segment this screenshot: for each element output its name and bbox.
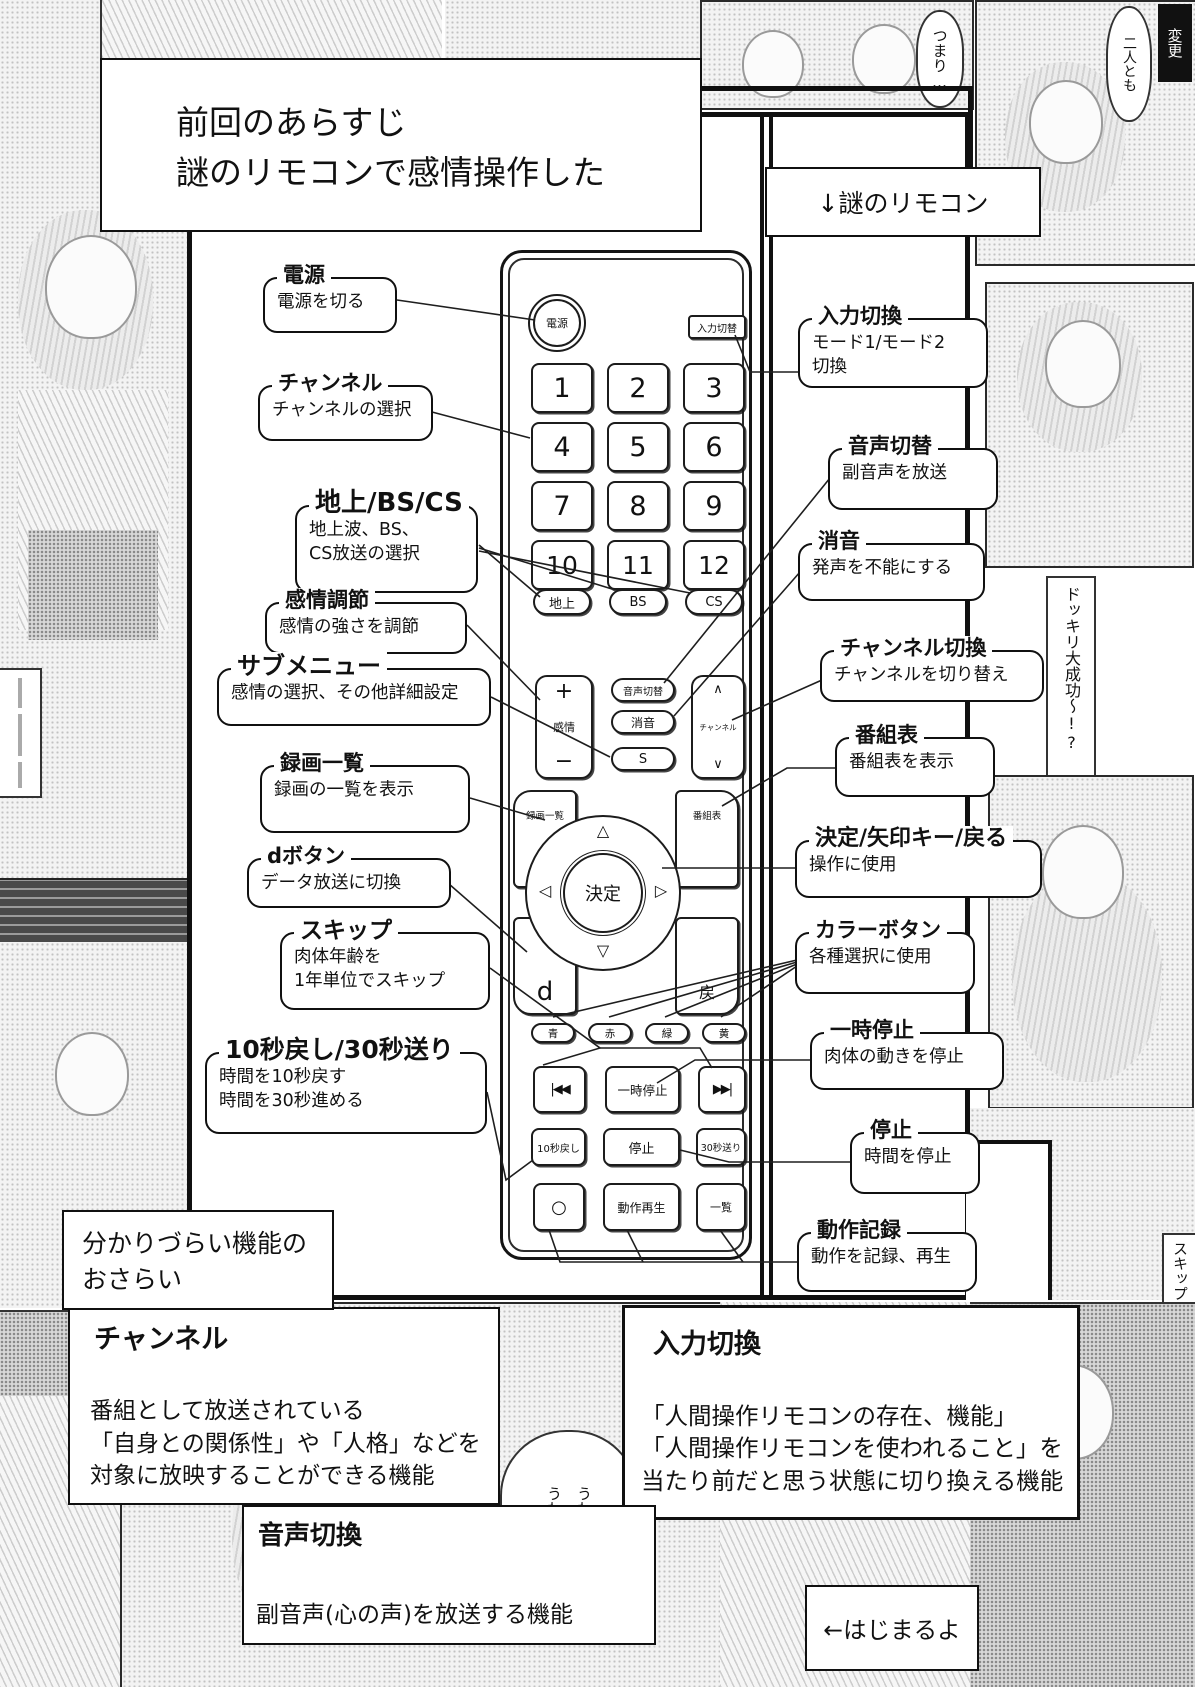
number-button-2[interactable]: 2: [607, 363, 669, 413]
train-tracks-art: [0, 878, 187, 944]
manga-page: つまり… 二人とも 変更 ドッキリ大成功〜!? スキップ: [0, 0, 1195, 1687]
callout-title: 音声切替: [842, 434, 938, 459]
review-intro-box: 分かりづらい機能の おさらい: [62, 1210, 334, 1310]
back-button[interactable]: 戻: [675, 917, 739, 1015]
review-intro-text: 分かりづらい機能の おさらい: [82, 1226, 307, 1299]
callout-channel: チャンネル チャンネルの選択: [258, 385, 433, 441]
number-button-3[interactable]: 3: [683, 363, 745, 413]
recap-text: 前回のあらすじ 謎のリモコンで感情操作した: [176, 98, 605, 197]
callout-title: 停止: [864, 1118, 918, 1143]
review-section-body: 副音声(心の声)を放送する機能: [256, 1595, 573, 1629]
bs-button[interactable]: BS: [609, 589, 667, 615]
callout-input-switch: 入力切換 モード1/モード2 切換: [798, 318, 988, 388]
callout-d-button: dボタン データ放送に切換: [247, 858, 451, 908]
vertical-caption-illegible: [0, 668, 42, 798]
terrestrial-button[interactable]: 地上: [533, 589, 591, 615]
record-circle-button[interactable]: ○: [533, 1183, 585, 1231]
number-button-7[interactable]: 7: [531, 481, 593, 531]
callout-desc: モード1/モード2 切換: [800, 320, 986, 383]
callout-program-guide: 番組表 番組表を表示: [835, 737, 995, 797]
arrow-up-icon[interactable]: △: [591, 821, 615, 840]
callout-10s-30s: 10秒戻し/30秒送り 時間を10秒戻す 時間を30秒進める: [205, 1052, 487, 1134]
remote-control: 電源 入力切替 1 2 3 4 5 6 7 8 9 10 11 12 地上 BS…: [500, 250, 752, 1260]
callout-bands: 地上/BS/CS 地上波、BS、 CS放送の選択: [295, 505, 478, 593]
character-head: [45, 235, 137, 339]
manga-art-panel: [0, 0, 102, 110]
callout-title: サブメニュー: [231, 652, 387, 681]
number-button-4[interactable]: 4: [531, 422, 593, 472]
number-button-11[interactable]: 11: [607, 540, 669, 590]
mute-button[interactable]: 消音: [611, 710, 675, 734]
emotion-label: 感情: [553, 719, 575, 735]
cs-button[interactable]: CS: [685, 589, 743, 615]
arrow-right-icon[interactable]: ▷: [649, 881, 673, 900]
callout-channel-switch: チャンネル切換 チャンネルを切り替え: [820, 650, 1044, 702]
caption-tag: 変更: [1158, 4, 1192, 82]
caption-text: スキップ: [1170, 1241, 1191, 1301]
arrow-down-icon[interactable]: ▽: [591, 941, 615, 960]
review-section-body: 「人間操作リモコンの存在、機能」 「人間操作リモコンを使われること」を 当たり前…: [641, 1400, 1063, 1497]
emotion-minus[interactable]: −: [555, 751, 573, 773]
callout-title: 10秒戻し/30秒送り: [219, 1035, 460, 1065]
skip-back-button[interactable]: |◀◀: [533, 1066, 586, 1113]
vertical-caption: ドッキリ大成功〜!?: [1046, 576, 1096, 796]
callout-title: 電源: [277, 263, 331, 288]
emotion-plus[interactable]: +: [555, 681, 573, 703]
callout-pause: 一時停止 肉体の動きを停止: [810, 1032, 1004, 1090]
program-guide-button[interactable]: 番組表: [675, 790, 739, 888]
number-button-9[interactable]: 9: [683, 481, 745, 531]
channel-up[interactable]: ∧: [713, 683, 723, 696]
callout-mute: 消音 発声を不能にする: [798, 543, 985, 601]
callout-title: 感情調節: [279, 588, 375, 613]
callout-stop: 停止 時間を停止: [850, 1132, 980, 1194]
callout-power: 電源 電源を切る: [263, 277, 397, 333]
character-head: [1029, 80, 1103, 164]
callout-ok-arrows-back: 決定/矢印キー/戻る 操作に使用: [795, 840, 1042, 898]
callout-title: 消音: [812, 529, 866, 554]
remote-pointer-box: ↓謎のリモコン: [765, 167, 1041, 237]
list-button[interactable]: 一覧: [696, 1183, 746, 1231]
color-button-green[interactable]: 緑: [645, 1023, 689, 1043]
review-audio-box: 音声切換 副音声(心の声)を放送する機能: [242, 1505, 656, 1645]
callout-title: 決定/矢印キー/戻る: [809, 826, 1013, 852]
callout-submenu: サブメニュー 感情の選択、その他詳細設定: [217, 668, 491, 726]
callout-emotion-adjust: 感情調節 感情の強さを調節: [265, 602, 467, 654]
speech-text: つまり…: [930, 28, 951, 91]
stop-button[interactable]: 停止: [603, 1128, 680, 1166]
character-head: [1042, 825, 1124, 919]
character-skirt: [28, 530, 158, 640]
input-select-button[interactable]: 入力切替: [688, 315, 746, 339]
audio-switch-button[interactable]: 音声切替: [611, 678, 675, 702]
forward-30s-button[interactable]: 30秒送り: [696, 1128, 746, 1166]
speech-text: 二人とも: [1119, 36, 1139, 92]
color-button-red[interactable]: 赤: [588, 1023, 632, 1043]
callout-title: 番組表: [849, 723, 924, 748]
color-button-blue[interactable]: 青: [531, 1023, 575, 1043]
caption-text: ドッキリ大成功〜!?: [1059, 586, 1083, 752]
callout-title: 動作記録: [811, 1218, 907, 1243]
callout-title: 入力切換: [812, 304, 908, 329]
speech-bubble: 二人とも: [1106, 6, 1152, 122]
channel-down[interactable]: ∨: [713, 758, 723, 771]
callout-audio-switch: 音声切替 副音声を放送: [828, 448, 998, 510]
review-section-body: 番組として放送されている 「自身との関係性」や「人格」などを 対象に放映すること…: [90, 1395, 481, 1493]
number-button-5[interactable]: 5: [607, 422, 669, 472]
callout-recorded-list: 録画一覧 録画の一覧を表示: [260, 765, 470, 833]
review-section-title: 音声切換: [258, 1515, 362, 1552]
callout-title: 地上/BS/CS: [309, 488, 469, 519]
submenu-button[interactable]: S: [611, 747, 675, 771]
arrow-left-icon[interactable]: ◁: [533, 881, 557, 900]
color-button-yellow[interactable]: 黄: [702, 1023, 746, 1043]
back-10s-button[interactable]: 10秒戻し: [531, 1128, 586, 1166]
callout-title: チャンネル: [272, 371, 388, 396]
manga-art-panel: [988, 775, 1194, 1109]
start-box: ←はじまるよ: [805, 1585, 979, 1671]
recap-box: 前回のあらすじ 謎のリモコンで感情操作した: [100, 58, 702, 232]
callout-title: スキップ: [294, 918, 398, 946]
manga-art-panel: [445, 0, 700, 58]
skip-forward-button[interactable]: ▶▶|: [698, 1066, 746, 1113]
power-button[interactable]: 電源: [533, 299, 581, 347]
number-button-1[interactable]: 1: [531, 363, 593, 413]
callout-title: dボタン: [261, 844, 351, 869]
emotion-rocker[interactable]: + 感情 −: [535, 675, 593, 779]
callout-title: 録画一覧: [274, 751, 370, 776]
callout-color-buttons: カラーボタン 各種選択に使用: [795, 932, 975, 994]
review-input-box: 入力切換 「人間操作リモコンの存在、機能」 「人間操作リモコンを使われること」を…: [622, 1305, 1080, 1520]
panel-gutter-line: [760, 114, 764, 1298]
manga-art-panel: [102, 0, 442, 58]
manga-art-panel: [985, 282, 1194, 568]
callout-title: チャンネル切換: [834, 636, 992, 661]
review-section-title: チャンネル: [94, 1317, 228, 1356]
number-button-10[interactable]: 10: [531, 540, 593, 590]
action-play-button[interactable]: 動作再生: [603, 1183, 680, 1231]
callout-title: カラーボタン: [809, 918, 947, 943]
number-button-8[interactable]: 8: [607, 481, 669, 531]
character-head: [55, 1032, 129, 1116]
pause-button[interactable]: 一時停止: [605, 1066, 680, 1113]
review-channel-box: チャンネル 番組として放送されている 「自身との関係性」や「人格」などを 対象に…: [68, 1307, 500, 1505]
callout-skip: スキップ 肉体年齢を 1年単位でスキップ: [280, 932, 490, 1010]
callout-action-record: 動作記録 動作を記録、再生: [797, 1232, 977, 1292]
channel-rocker[interactable]: ∧ チャンネル ∨: [691, 675, 745, 779]
caption-text: 変更: [1165, 28, 1186, 58]
number-button-12[interactable]: 12: [683, 540, 745, 590]
character-head: [852, 24, 916, 94]
channel-label: チャンネル: [699, 722, 736, 733]
panel-gutter-line: [769, 114, 773, 1298]
review-section-title: 入力切換: [653, 1322, 761, 1361]
callout-title: 一時停止: [824, 1018, 920, 1043]
number-button-6[interactable]: 6: [683, 422, 745, 472]
ok-button[interactable]: 決定: [563, 853, 643, 933]
character-head: [1045, 320, 1121, 408]
